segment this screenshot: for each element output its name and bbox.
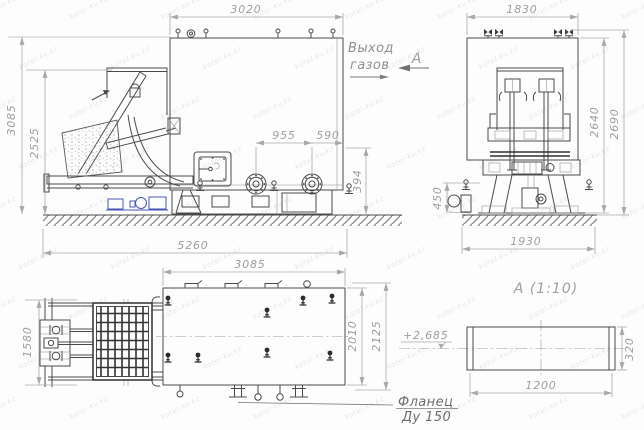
section-arrow-icon xyxy=(398,65,410,72)
door-handle-icon xyxy=(209,167,213,171)
section-arrow-a: А xyxy=(398,51,429,71)
dim-2640: 2640 xyxy=(580,38,609,213)
dim-3085-plan: 3085 xyxy=(163,258,345,286)
plan-grate xyxy=(93,303,152,380)
roof-bolt-icon xyxy=(203,29,209,38)
ground-hatch-side xyxy=(43,215,402,226)
dim-394-label: 394 xyxy=(351,169,364,192)
clamp-icon xyxy=(495,29,503,38)
dim-320-label: 320 xyxy=(623,337,636,360)
dim-1580-label: 1580 xyxy=(21,326,34,357)
elevation-mark: +2,685 xyxy=(401,329,452,349)
roof-fittings xyxy=(175,29,336,38)
lifting-lug-icon xyxy=(265,281,282,289)
dim-2690-label: 2690 xyxy=(608,108,621,139)
front-support-band xyxy=(483,160,580,175)
dim-1200: 1200 xyxy=(470,373,612,397)
dim-1930-label: 1930 xyxy=(510,235,541,248)
roof-bolt-icon xyxy=(175,29,181,38)
flange-stub-icon xyxy=(290,385,308,397)
flange-left-icon xyxy=(246,174,266,194)
flange-callout: Фланец Ду 150 xyxy=(238,395,458,425)
dim-955-590: 955 590 xyxy=(256,129,343,173)
elevation-value: +2,685 xyxy=(403,329,449,342)
dim-450: 450 xyxy=(431,183,480,213)
dim-2525-label: 2525 xyxy=(28,127,41,158)
plan-view: 3085 xyxy=(21,258,391,400)
lifting-lug-icon xyxy=(225,281,242,289)
front-hopper xyxy=(497,68,563,130)
flange-stub-icon xyxy=(229,385,247,397)
dim-5260-label: 5260 xyxy=(177,239,208,252)
dim-3085-height-label: 3085 xyxy=(5,104,18,135)
dim-450-label: 450 xyxy=(431,186,444,209)
plan-pusher xyxy=(40,320,93,366)
plan-loader xyxy=(40,297,163,387)
dim-590-label: 590 xyxy=(316,129,339,142)
plan-bottom-fittings xyxy=(177,385,308,400)
dim-3085-plan-label: 3085 xyxy=(234,258,265,271)
flange-right-icon xyxy=(302,174,322,194)
skip-bucket xyxy=(62,120,122,178)
jack-foot-icon xyxy=(462,180,470,190)
lifting-lug-icon xyxy=(185,281,202,289)
hopper-latch-icon xyxy=(130,88,140,97)
incinerator-drawing: 3020 3085 2525 955 590 xyxy=(0,0,644,430)
ground-hatch-front xyxy=(462,215,597,226)
motor-icon xyxy=(136,198,147,209)
flange-callout-text-1: Фланец xyxy=(398,395,453,410)
flange-callout-text-2: Ду 150 xyxy=(401,410,451,425)
dim-2125-label: 2125 xyxy=(370,320,383,351)
furnace-body xyxy=(170,38,343,190)
elevation-arrow-icon xyxy=(438,344,443,349)
burner-fan xyxy=(448,195,471,213)
dim-1930: 1930 xyxy=(462,227,595,254)
dim-1200-label: 1200 xyxy=(525,379,556,392)
dim-2010-label: 2010 xyxy=(346,320,359,351)
roof-bolt-icon xyxy=(330,29,336,38)
drive-unit-blue xyxy=(106,197,168,210)
roof-dome-icon xyxy=(187,30,195,38)
dim-2010: 2010 xyxy=(346,288,367,385)
gas-flow-arrow-icon xyxy=(380,75,389,79)
dim-1830-label: 1830 xyxy=(506,3,537,16)
front-legs-base xyxy=(478,175,585,213)
gas-outlet-label: Выход газов xyxy=(348,41,394,79)
gas-outlet-text-2: газов xyxy=(350,58,389,73)
dim-955-label: 955 xyxy=(272,129,295,142)
dim-3085-height: 3085 xyxy=(5,37,170,214)
detail-title: А (1:10) xyxy=(513,281,578,297)
jack-foot-icon xyxy=(270,181,278,191)
dim-3020-label: 3020 xyxy=(230,3,261,16)
plan-top-fitting xyxy=(304,281,311,288)
dim-394: 394 xyxy=(346,148,371,214)
engineering-drawing-sheet: kotel-kv.kzkotel-kv.kzkotel-kv.kzkotel-k… xyxy=(0,0,644,430)
gas-outlet-text-1: Выход xyxy=(348,41,394,56)
front-mid-frame xyxy=(488,128,570,156)
front-body xyxy=(467,38,578,160)
clamp-icon xyxy=(554,29,562,38)
roof-bolt-icon xyxy=(308,29,314,38)
detail-view-a: А (1:10) 1200 320 +2,685 xyxy=(238,281,636,425)
jack-foot-icon xyxy=(585,180,593,190)
section-letter: А xyxy=(411,51,423,67)
dim-5260: 5260 xyxy=(43,229,347,258)
plan-bolts xyxy=(165,294,336,362)
roof-bolt-icon xyxy=(275,29,281,38)
dim-3020: 3020 xyxy=(170,3,343,35)
dim-2640-label: 2640 xyxy=(588,106,601,137)
discharge-chute xyxy=(128,115,184,186)
clamp-icon xyxy=(484,29,492,38)
pivot-wheel-icon xyxy=(145,177,155,187)
